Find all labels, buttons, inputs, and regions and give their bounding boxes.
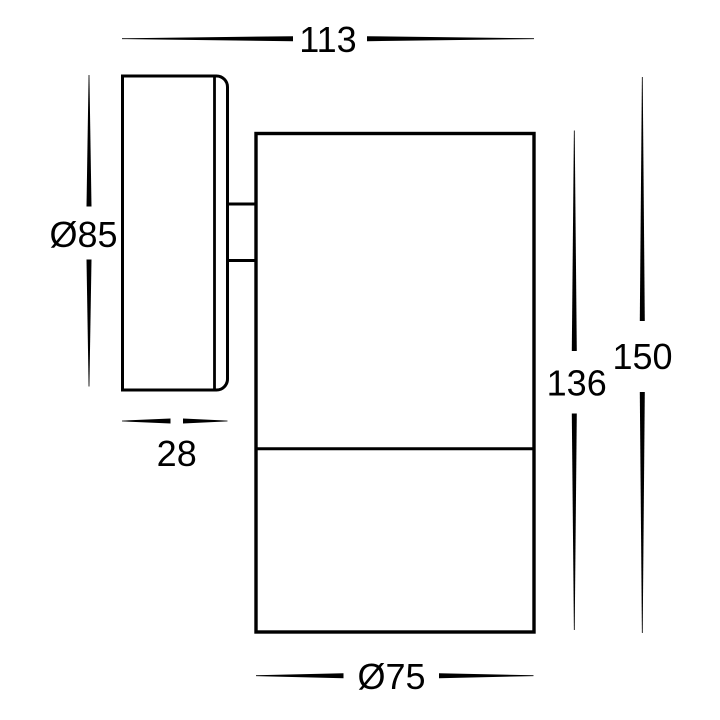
dim-85-label: Ø85 bbox=[49, 214, 117, 255]
dim-113-left-arrow bbox=[122, 36, 293, 41]
dim-75-left-arrow bbox=[256, 673, 344, 678]
dim-28-left-arrow bbox=[122, 419, 171, 424]
dim-85-bottom-arrow bbox=[87, 260, 92, 387]
dim-136-label: 136 bbox=[547, 363, 607, 404]
backplate-outline bbox=[123, 76, 228, 390]
dim-150-top-arrow bbox=[640, 77, 645, 321]
dimension-drawing: 113 Ø85 28 136 150 Ø75 bbox=[0, 0, 720, 720]
dim-136-top-arrow bbox=[572, 131, 577, 352]
lamp-body-outline bbox=[256, 134, 534, 633]
dim-28-label: 28 bbox=[157, 433, 197, 474]
dim-150-label: 150 bbox=[612, 336, 672, 377]
dim-150-bottom-arrow bbox=[640, 392, 645, 633]
dim-85-top-arrow bbox=[87, 75, 92, 207]
drawing-canvas: 113 Ø85 28 136 150 Ø75 bbox=[0, 0, 720, 720]
dim-113-right-arrow bbox=[367, 36, 534, 41]
dim-136-bottom-arrow bbox=[572, 414, 577, 631]
dim-28-right-arrow bbox=[183, 419, 228, 424]
dim-75-right-arrow bbox=[439, 673, 534, 678]
mounting-arm bbox=[228, 204, 257, 261]
dim-113-label: 113 bbox=[299, 19, 356, 60]
dim-75-label: Ø75 bbox=[357, 656, 425, 697]
